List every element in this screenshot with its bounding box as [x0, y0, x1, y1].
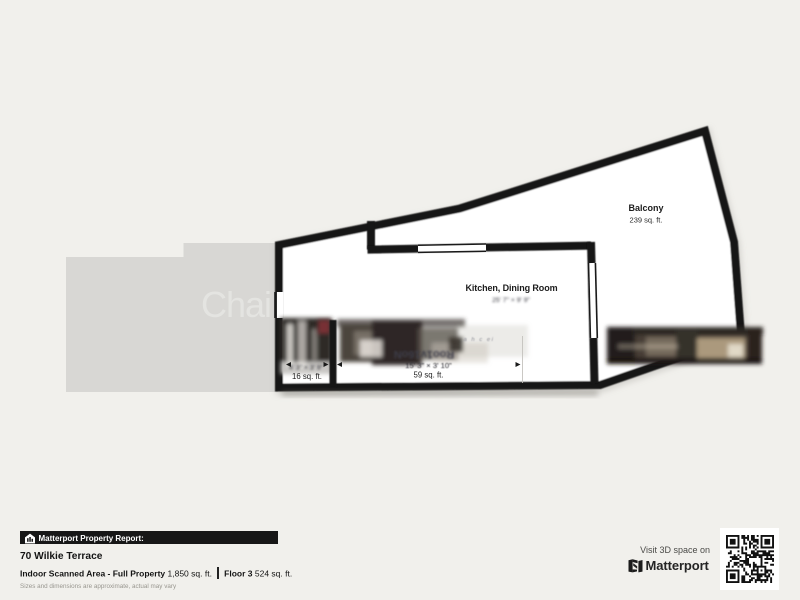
svg-text:Balcony: Balcony [628, 203, 663, 213]
svg-text:239 sq. ft.: 239 sq. ft. [630, 216, 663, 225]
svg-text:Kitchen, Dining Room: Kitchen, Dining Room [466, 283, 558, 293]
svg-text:25' 7" × 9' 9": 25' 7" × 9' 9" [492, 297, 530, 304]
svg-text:Chai: Chai [201, 284, 271, 325]
svg-text:16 sq. ft.: 16 sq. ft. [292, 372, 322, 381]
svg-text:Roo1v16oN: Roo1v16oN [394, 348, 455, 360]
svg-text:59 sq. ft.: 59 sq. ft. [414, 371, 444, 380]
svg-text:a h c ei: a h c ei [464, 337, 495, 343]
svg-text:4' 3" × 3' 9": 4' 3" × 3' 9" [289, 365, 324, 372]
svg-text:15' 3" × 3' 10": 15' 3" × 3' 10" [405, 361, 452, 370]
